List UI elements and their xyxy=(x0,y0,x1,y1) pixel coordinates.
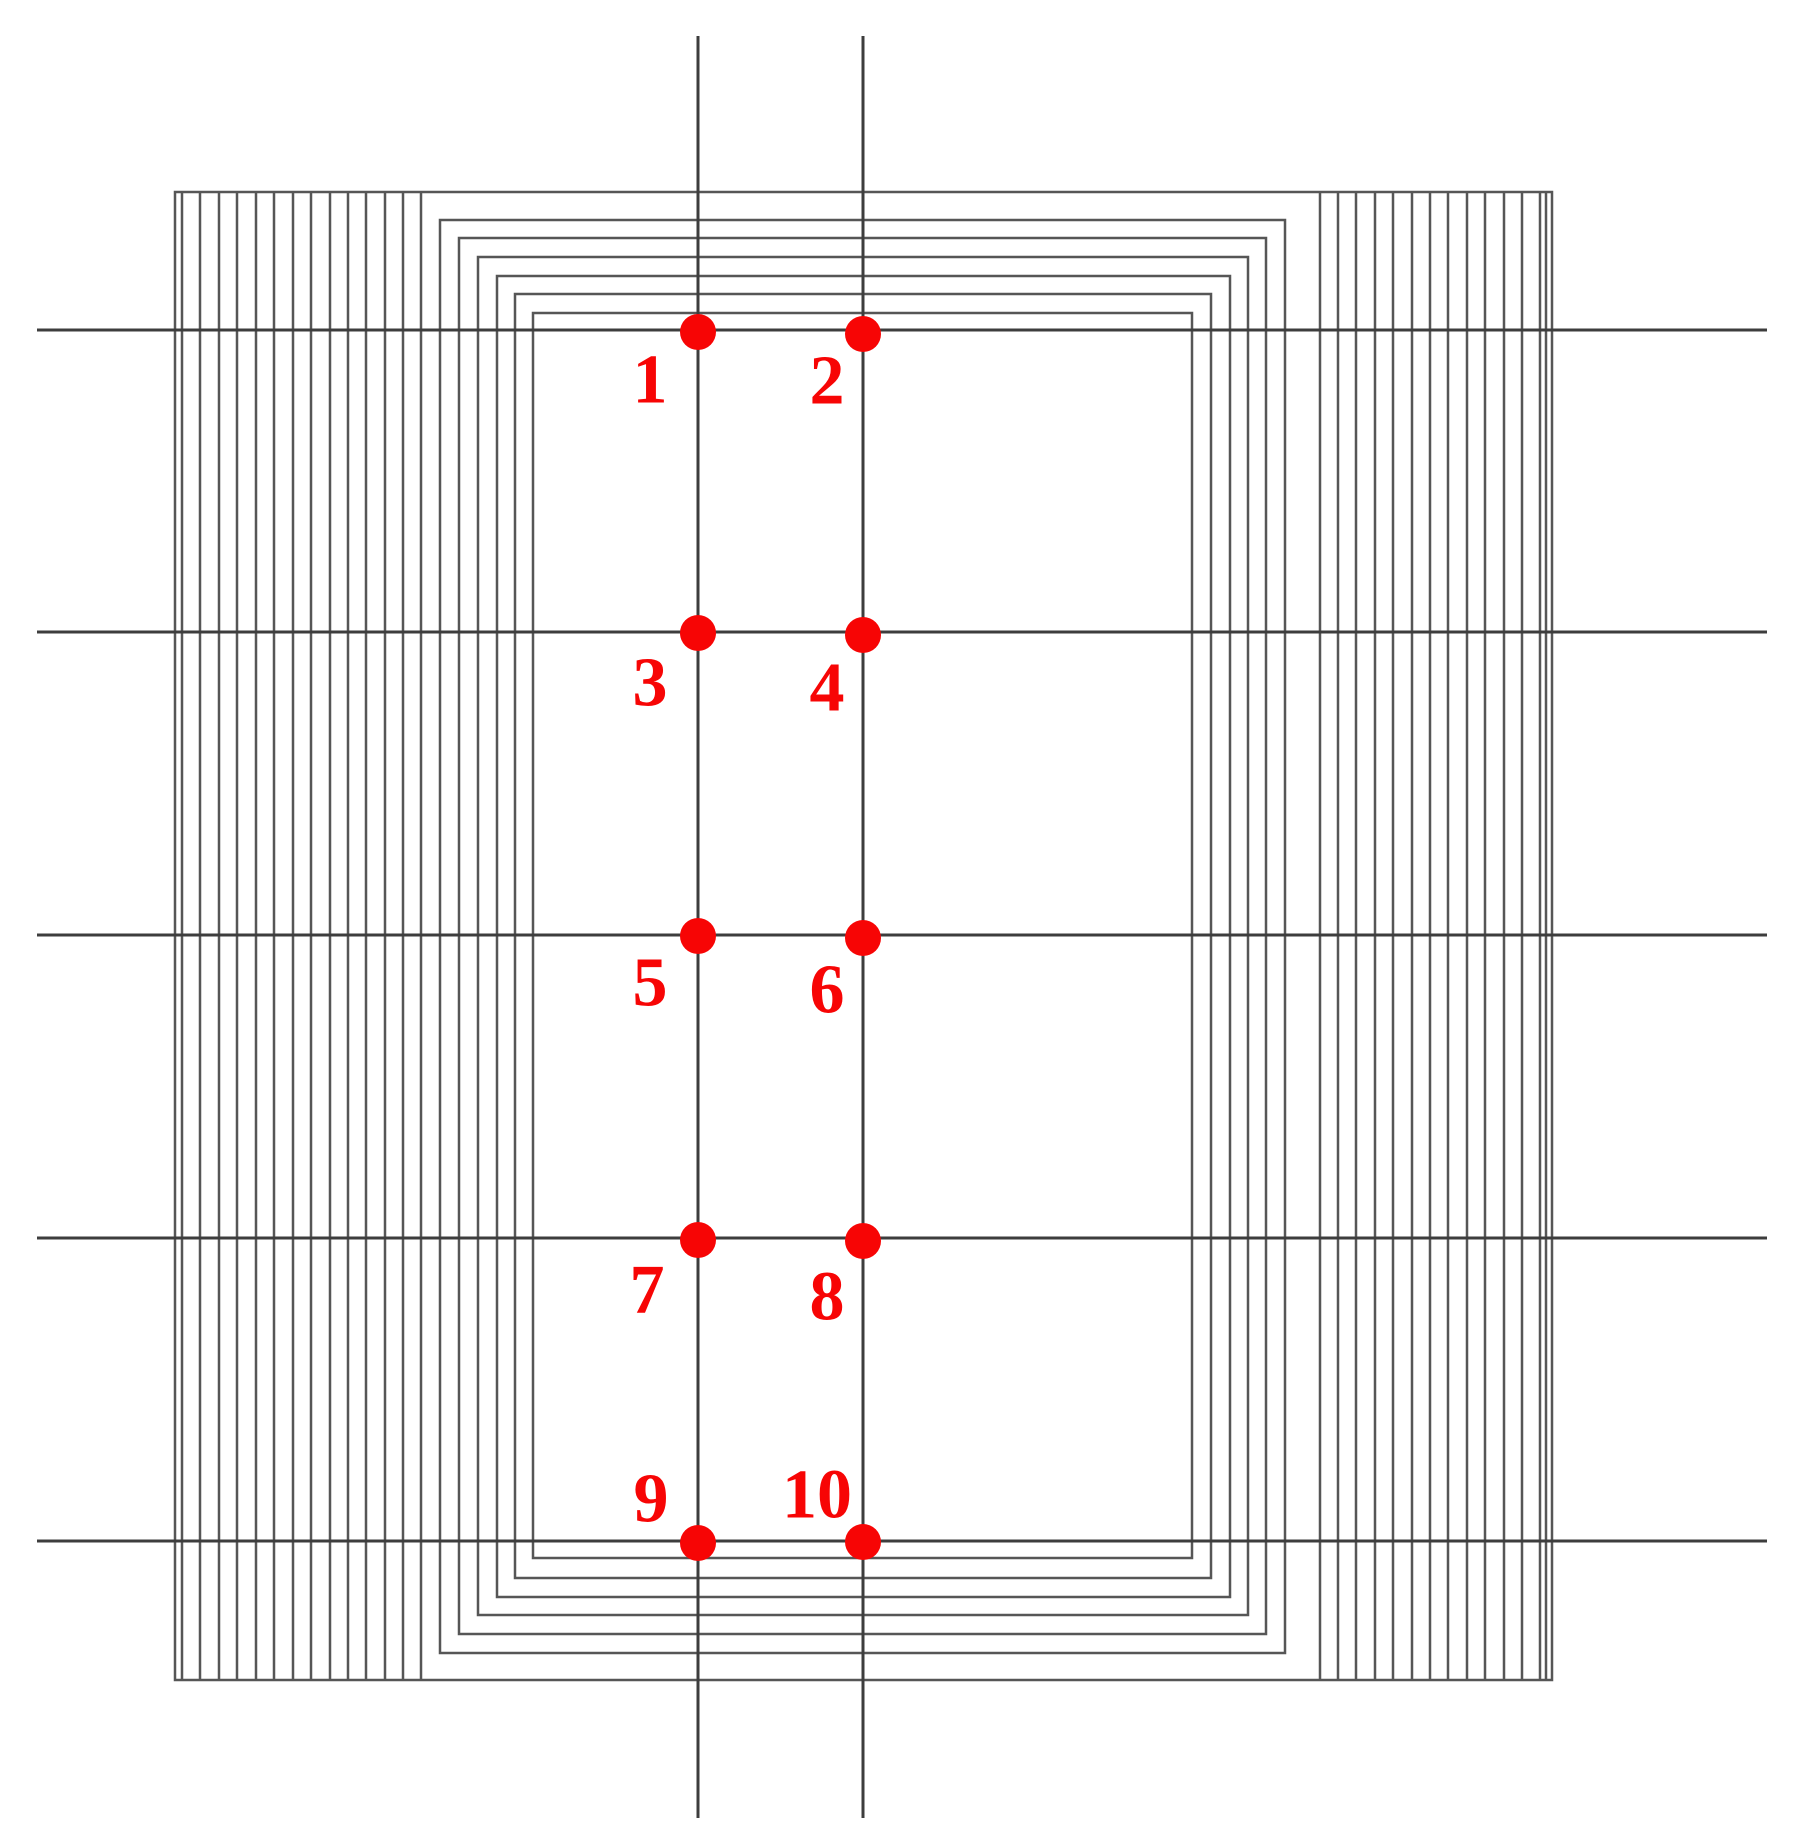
measurement-label-3: 3 xyxy=(633,645,668,722)
measurement-label-7: 7 xyxy=(630,1252,665,1329)
measurement-dot-1 xyxy=(680,314,716,350)
measurement-label-1: 1 xyxy=(633,342,668,419)
measurement-dot-5 xyxy=(680,918,716,954)
measurement-dot-4 xyxy=(845,617,881,653)
measurement-dot-6 xyxy=(845,920,881,956)
measurement-label-8: 8 xyxy=(810,1259,845,1336)
measurement-label-2: 2 xyxy=(810,343,845,420)
coil-measurement-diagram: 12345678910 xyxy=(0,0,1796,1846)
measurement-label-6: 6 xyxy=(810,952,845,1029)
measurement-dot-3 xyxy=(680,615,716,651)
measurement-label-5: 5 xyxy=(633,945,668,1022)
measurement-dot-9 xyxy=(680,1525,716,1561)
measurement-label-10: 10 xyxy=(782,1457,852,1534)
measurement-label-4: 4 xyxy=(810,650,845,727)
measurement-dot-2 xyxy=(845,316,881,352)
figure-canvas: 12345678910 xyxy=(0,0,1796,1846)
measurement-dot-8 xyxy=(845,1223,881,1259)
measurement-dot-7 xyxy=(680,1222,716,1258)
measurement-label-9: 9 xyxy=(634,1461,669,1538)
